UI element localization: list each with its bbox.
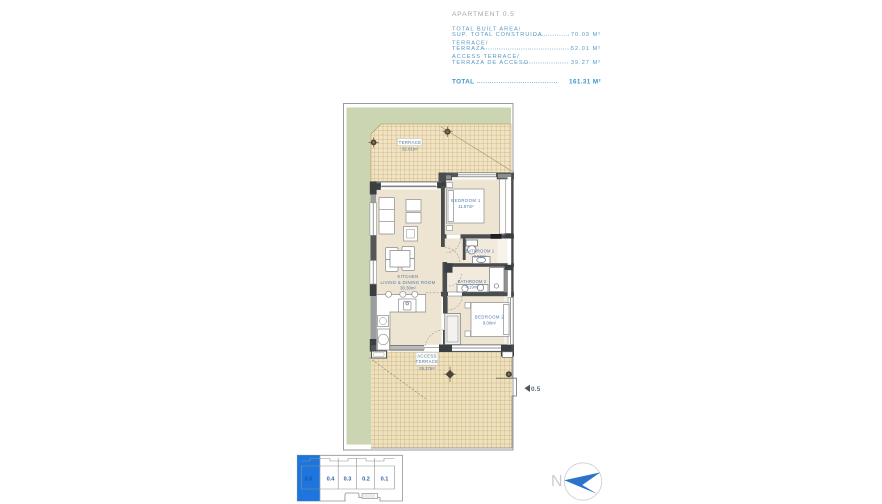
svg-text:TERRAZA DE ACCESO: TERRAZA DE ACCESO (452, 60, 529, 66)
svg-text:52.01 M²: 52.01 M² (571, 46, 601, 52)
svg-text:TOTAL: TOTAL (452, 79, 474, 86)
svg-text:29.27m²: 29.27m² (419, 366, 435, 371)
svg-text:52.01m²: 52.01m² (402, 147, 418, 152)
svg-text:BATHROOM 2: BATHROOM 2 (458, 279, 487, 284)
svg-text:0.3: 0.3 (344, 477, 352, 483)
svg-text:BEDROOM 2: BEDROOM 2 (475, 314, 505, 319)
svg-text:0.1: 0.1 (381, 477, 389, 483)
svg-text:SUP. TOTAL CONSTRUIDA: SUP. TOTAL CONSTRUIDA (452, 32, 543, 38)
svg-text:0.5: 0.5 (305, 477, 313, 483)
svg-text:3.52m²: 3.52m² (474, 254, 487, 259)
svg-text:0.4: 0.4 (327, 477, 336, 483)
svg-text:9.00m²: 9.00m² (483, 320, 497, 325)
svg-text:APARTMENT 0.5: APARTMENT 0.5 (452, 11, 515, 18)
svg-text:TERRACE: TERRACE (399, 140, 422, 145)
svg-text:N: N (551, 473, 563, 490)
svg-text:KITCHEN: KITCHEN (398, 274, 419, 279)
svg-text:ACCESS: ACCESS (417, 354, 436, 359)
svg-text:70.03 M²: 70.03 M² (571, 32, 601, 38)
svg-text:11.87m²: 11.87m² (458, 204, 474, 209)
svg-text:LIVING & DINING ROOM: LIVING & DINING ROOM (381, 280, 436, 285)
svg-text:TERRAZA: TERRAZA (452, 46, 485, 52)
svg-text:0.2: 0.2 (362, 477, 370, 483)
svg-text:TERRACE: TERRACE (416, 359, 439, 364)
svg-text:4.19m²: 4.19m² (466, 284, 479, 289)
svg-text:39.27 M²: 39.27 M² (571, 60, 601, 66)
svg-text:30.30m²: 30.30m² (400, 286, 416, 291)
svg-text:BEDROOM 1: BEDROOM 1 (451, 198, 481, 203)
svg-text:161.31 M²: 161.31 M² (569, 79, 601, 86)
svg-text:0.5: 0.5 (531, 386, 541, 393)
svg-text:BATHROOM 1: BATHROOM 1 (466, 249, 495, 254)
